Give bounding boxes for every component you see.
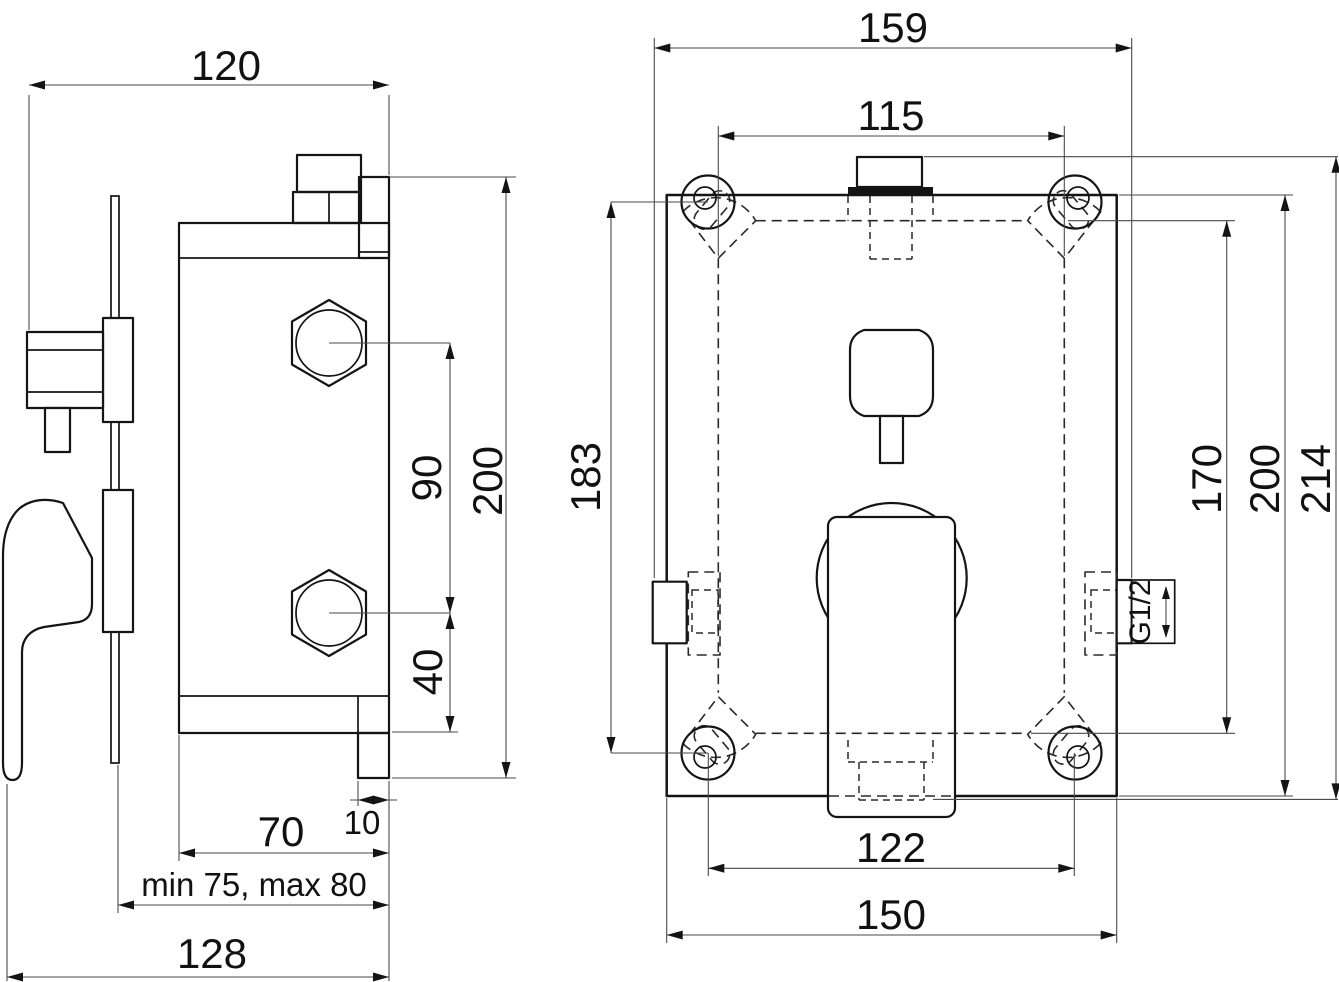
mounting-ear-bottom-right [1028, 697, 1102, 780]
dim-front-overall-width-label: 159 [858, 4, 928, 51]
escutcheon-bottom [103, 490, 133, 632]
mixer-lever [828, 517, 955, 817]
dim-side-body-depth-label: 70 [258, 808, 305, 855]
top-outlet-fitting [293, 155, 389, 258]
diverter-knob [850, 330, 933, 463]
dim-front-screw-vertical-label: 183 [562, 442, 609, 512]
dim-side-flange-label: 10 [344, 804, 381, 841]
valve-body [179, 223, 389, 733]
side-view-dimensions: 120 90 40 200 [7, 42, 516, 982]
top-connector [848, 157, 933, 259]
mounting-ear-bottom-left [682, 697, 756, 780]
spout-connection [27, 332, 103, 452]
dim-front-plate-width-label: 150 [856, 891, 926, 938]
dim-front-plate-height-label: 200 [1241, 444, 1288, 514]
technical-drawing-page: 120 90 40 200 [0, 0, 1339, 982]
lever-handle [3, 500, 92, 780]
wall-plate [111, 196, 119, 763]
side-view: 120 90 40 200 [3, 42, 516, 982]
thread-callout: G1/2 [1124, 579, 1175, 644]
dim-side-port-offset-label: 40 [404, 649, 451, 696]
side-port-left [653, 572, 720, 655]
dim-side-width-label: 120 [191, 42, 261, 89]
mounting-foot [358, 696, 389, 778]
dim-side-total-depth-label: 128 [177, 930, 247, 977]
dim-front-overall-height-label: 214 [1292, 444, 1339, 514]
dim-front-screw-horizontal-label: 122 [856, 824, 926, 871]
dim-side-plaster-range-label: min 75, max 80 [141, 866, 367, 903]
escutcheon-top [103, 318, 133, 422]
mixer-dimension-drawing: 120 90 40 200 [0, 0, 1339, 982]
dim-front-recess-width-label: 115 [858, 92, 925, 139]
thread-size-label: G1/2 [1124, 579, 1157, 644]
dim-front-recess-height-label: 170 [1183, 444, 1230, 514]
dim-side-height-label: 200 [464, 446, 511, 516]
front-view: G1/2 159 115 183 [562, 4, 1339, 943]
dim-side-port-spacing-label: 90 [403, 455, 450, 502]
